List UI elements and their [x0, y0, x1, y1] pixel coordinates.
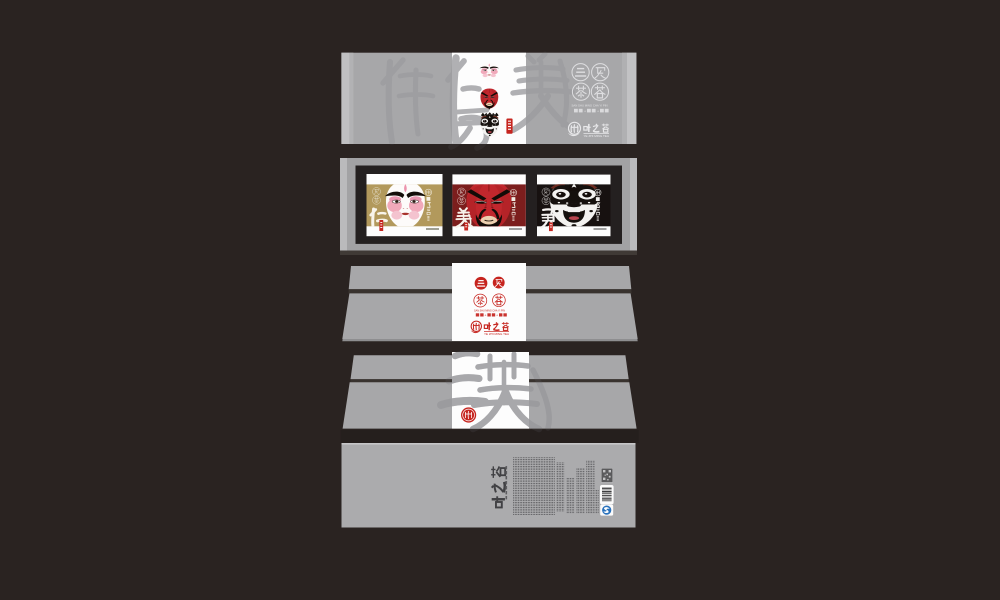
- svg-text:+: +: [597, 109, 599, 113]
- svg-text:SAN SHU MING CHA YI PIN: SAN SHU MING CHA YI PIN: [474, 308, 505, 312]
- svg-text:YE ZHI MING TEA: YE ZHI MING TEA: [584, 135, 610, 138]
- svg-text:+: +: [496, 313, 498, 317]
- svg-text:+: +: [584, 109, 586, 113]
- svg-text:+: +: [484, 313, 486, 317]
- svg-text:YE ZHI MING TEA: YE ZHI MING TEA: [484, 333, 510, 336]
- svg-text:SAN SHU MING CHA YI PIN: SAN SHU MING CHA YI PIN: [572, 103, 608, 107]
